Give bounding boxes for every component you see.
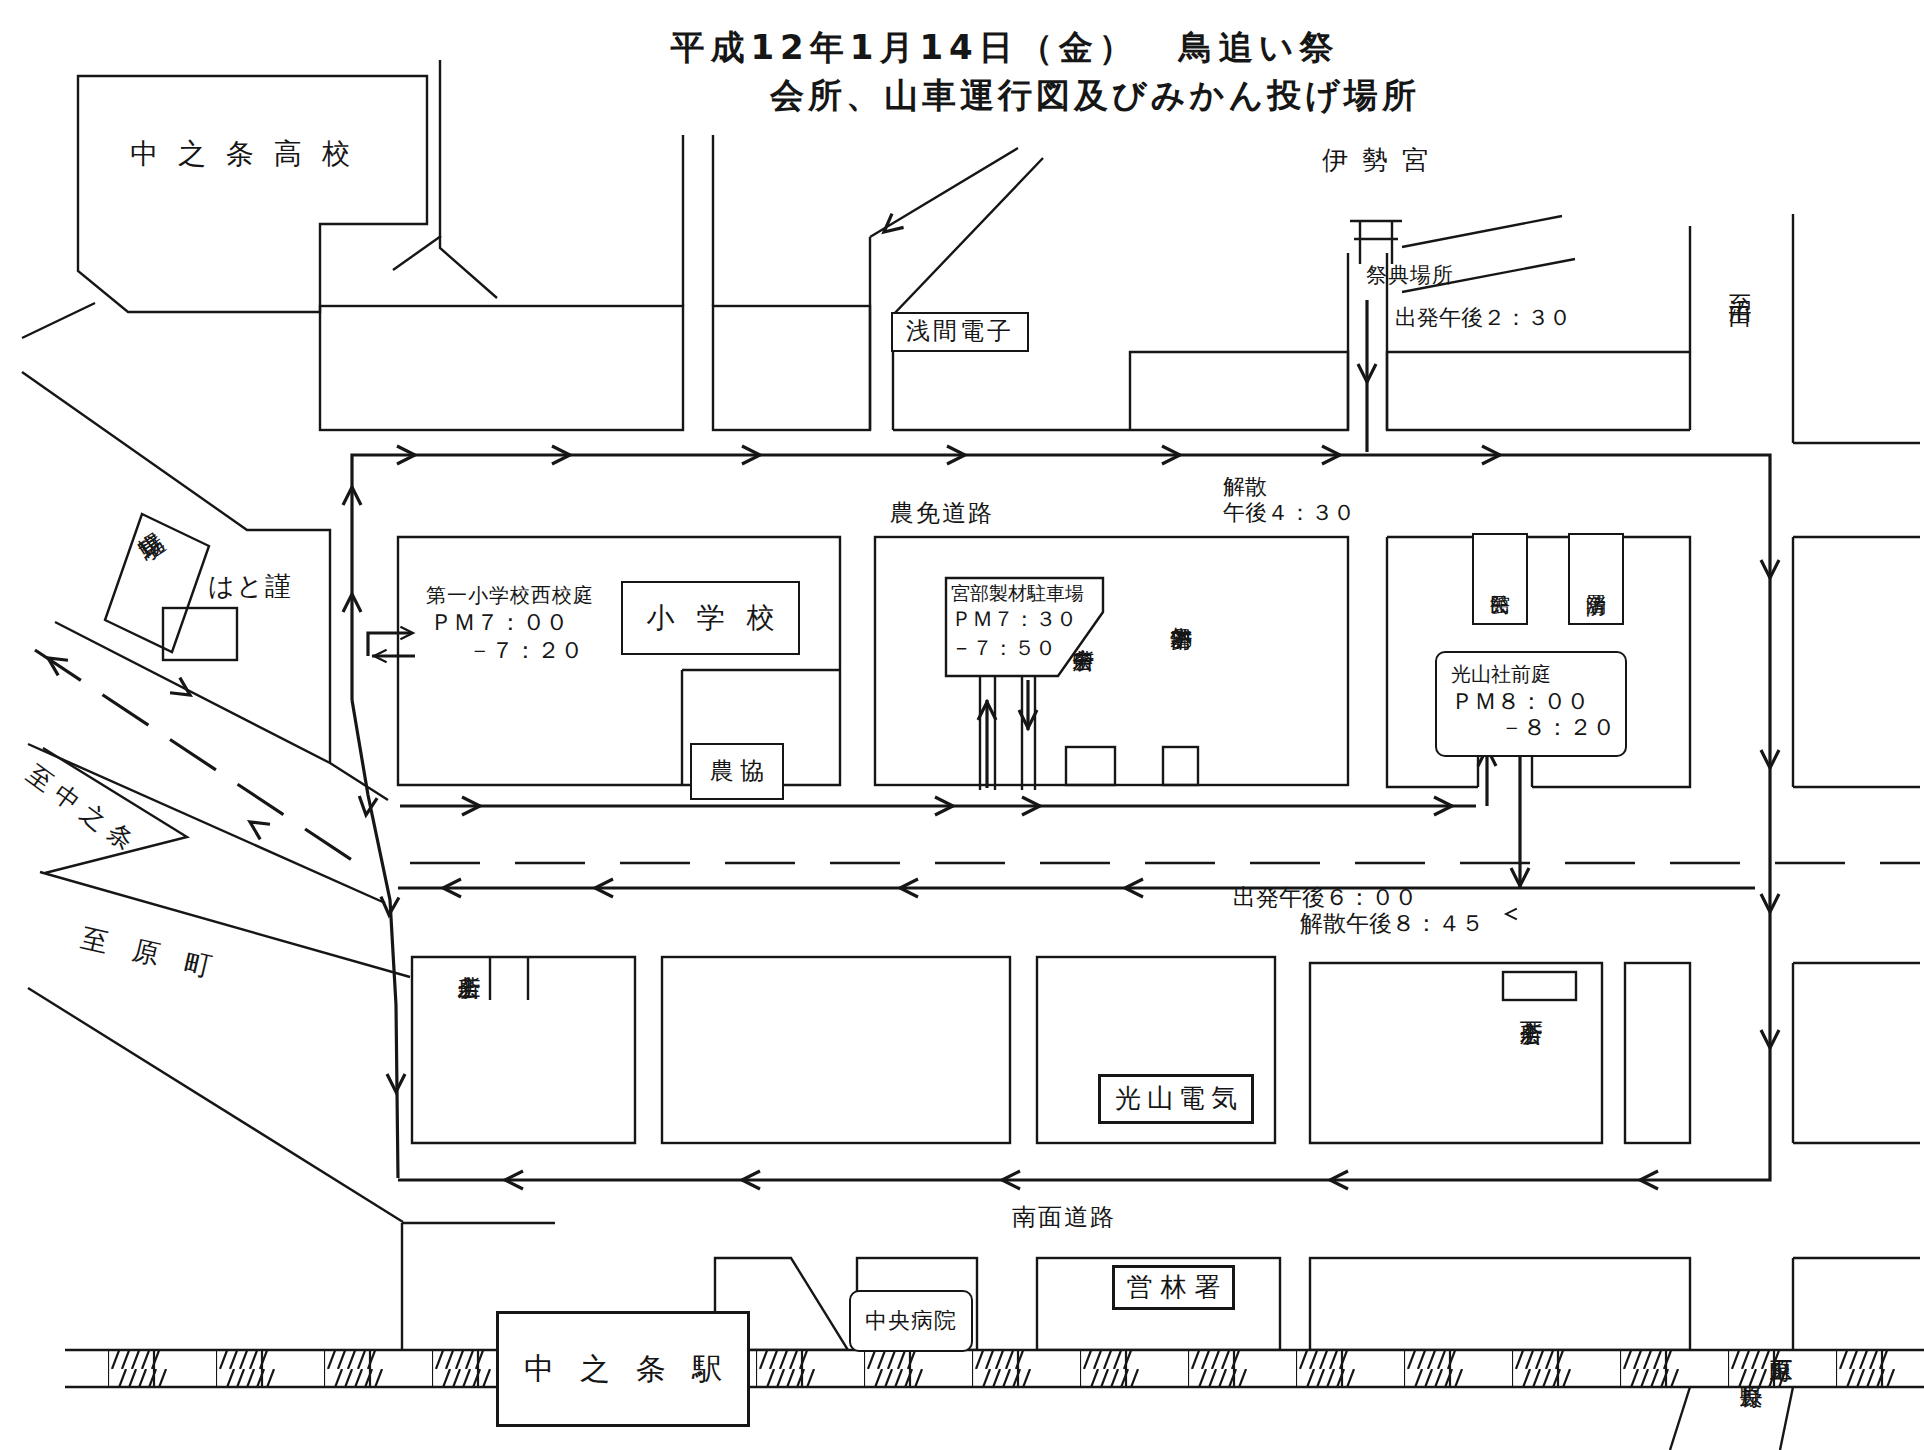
box-kozansha-garden: 光山社前庭 ＰＭ８：００ －８：２０ — [1435, 651, 1627, 757]
label-nakawaka-kaisho: 中若会所 — [1071, 632, 1096, 767]
label-nokyo: 農協 — [704, 758, 770, 786]
box-asama-denshi: 浅間電子 — [891, 312, 1029, 352]
label-kozansha-time1: ＰＭ８：００ — [1451, 688, 1589, 714]
label-station: 中之条駅 — [498, 1352, 748, 1387]
label-asama-denshi: 浅間電子 — [906, 318, 1014, 346]
label-miyabe-time2: －７：５０ — [951, 636, 1056, 660]
box-fire-station: 消防署 — [1568, 533, 1624, 625]
railway — [65, 1350, 1924, 1387]
label-hato: はと謹 — [208, 572, 293, 602]
label-miyabe-time1: ＰＭ７：３０ — [951, 607, 1077, 631]
label-kozan-denki: 光山電気 — [1109, 1084, 1243, 1114]
box-elementary-school: 小学校 — [621, 581, 800, 655]
blocks-and-roads — [22, 60, 1920, 1450]
box-kozan-denki: 光山電気 — [1098, 1074, 1254, 1124]
label-bottom-right-dest1: 至原町 — [1768, 1342, 1794, 1442]
label-kamiwaka-kaisho: 上若会所 — [456, 958, 482, 1083]
box-eirinsho: 営林署 — [1112, 1265, 1235, 1310]
label-chuo-hospital: 中央病院 — [865, 1308, 957, 1333]
map-title-line1: 平成12年1月14日（金） 鳥追い祭 — [455, 28, 1555, 67]
label-festival-site: 祭典場所 — [1366, 263, 1454, 287]
label-kozansha-time2: －８：２０ — [1500, 714, 1615, 740]
box-chuo-hospital: 中央病院 — [849, 1290, 973, 1352]
label-ise-shrine: 伊勢宮 — [1322, 146, 1442, 176]
box-station: 中之条駅 — [496, 1311, 750, 1427]
festival-route-map: 平成12年1月14日（金） 鳥追い祭 会所、山車運行図及びみかん投げ場所 中之条… — [0, 0, 1924, 1450]
label-school-yard-time2: －７：２０ — [468, 637, 583, 663]
label-kozansha-garden: 光山社前庭 — [1451, 663, 1551, 686]
note-depart-600: 出発午後６：００ — [1233, 884, 1417, 910]
label-isewaka-honbu: 伊勢若本部 — [1169, 610, 1194, 775]
label-school-yard: 第一小学校西校庭 — [426, 584, 594, 607]
label-to-numata: 至沼田 — [1727, 276, 1753, 386]
torii-icon — [1350, 221, 1402, 264]
map-linework — [0, 0, 1924, 1450]
label-bottom-right-dest2: 長野原 — [1738, 1368, 1764, 1450]
box-nokyo: 農協 — [690, 743, 784, 800]
label-miyabe-lot: 宮部製材駐車場 — [951, 583, 1084, 605]
label-nanmen-road: 南面道路 — [1012, 1204, 1116, 1232]
box-kominkan: 公民館 — [1472, 533, 1528, 625]
map-title-line2: 会所、山車運行図及びみかん投げ場所 — [545, 76, 1645, 115]
label-eirinsho: 営林署 — [1119, 1273, 1229, 1303]
label-shimowaka-kaisho: 下若会所 — [1518, 1004, 1544, 1129]
note-depart-230: 出発午後２：３０ — [1395, 305, 1571, 330]
label-highschool: 中之条高校 — [110, 138, 390, 170]
label-school-yard-time1: ＰＭ７：００ — [430, 609, 568, 635]
note-disband-430-line2: 午後４：３０ — [1223, 500, 1355, 525]
note-disband-430-line1: 解散 — [1223, 474, 1267, 499]
label-nomen-road: 農免道路 — [890, 500, 994, 528]
note-disband-845: 解散午後８：４５ — [1300, 910, 1484, 936]
label-elementary-school: 小学校 — [625, 602, 797, 634]
